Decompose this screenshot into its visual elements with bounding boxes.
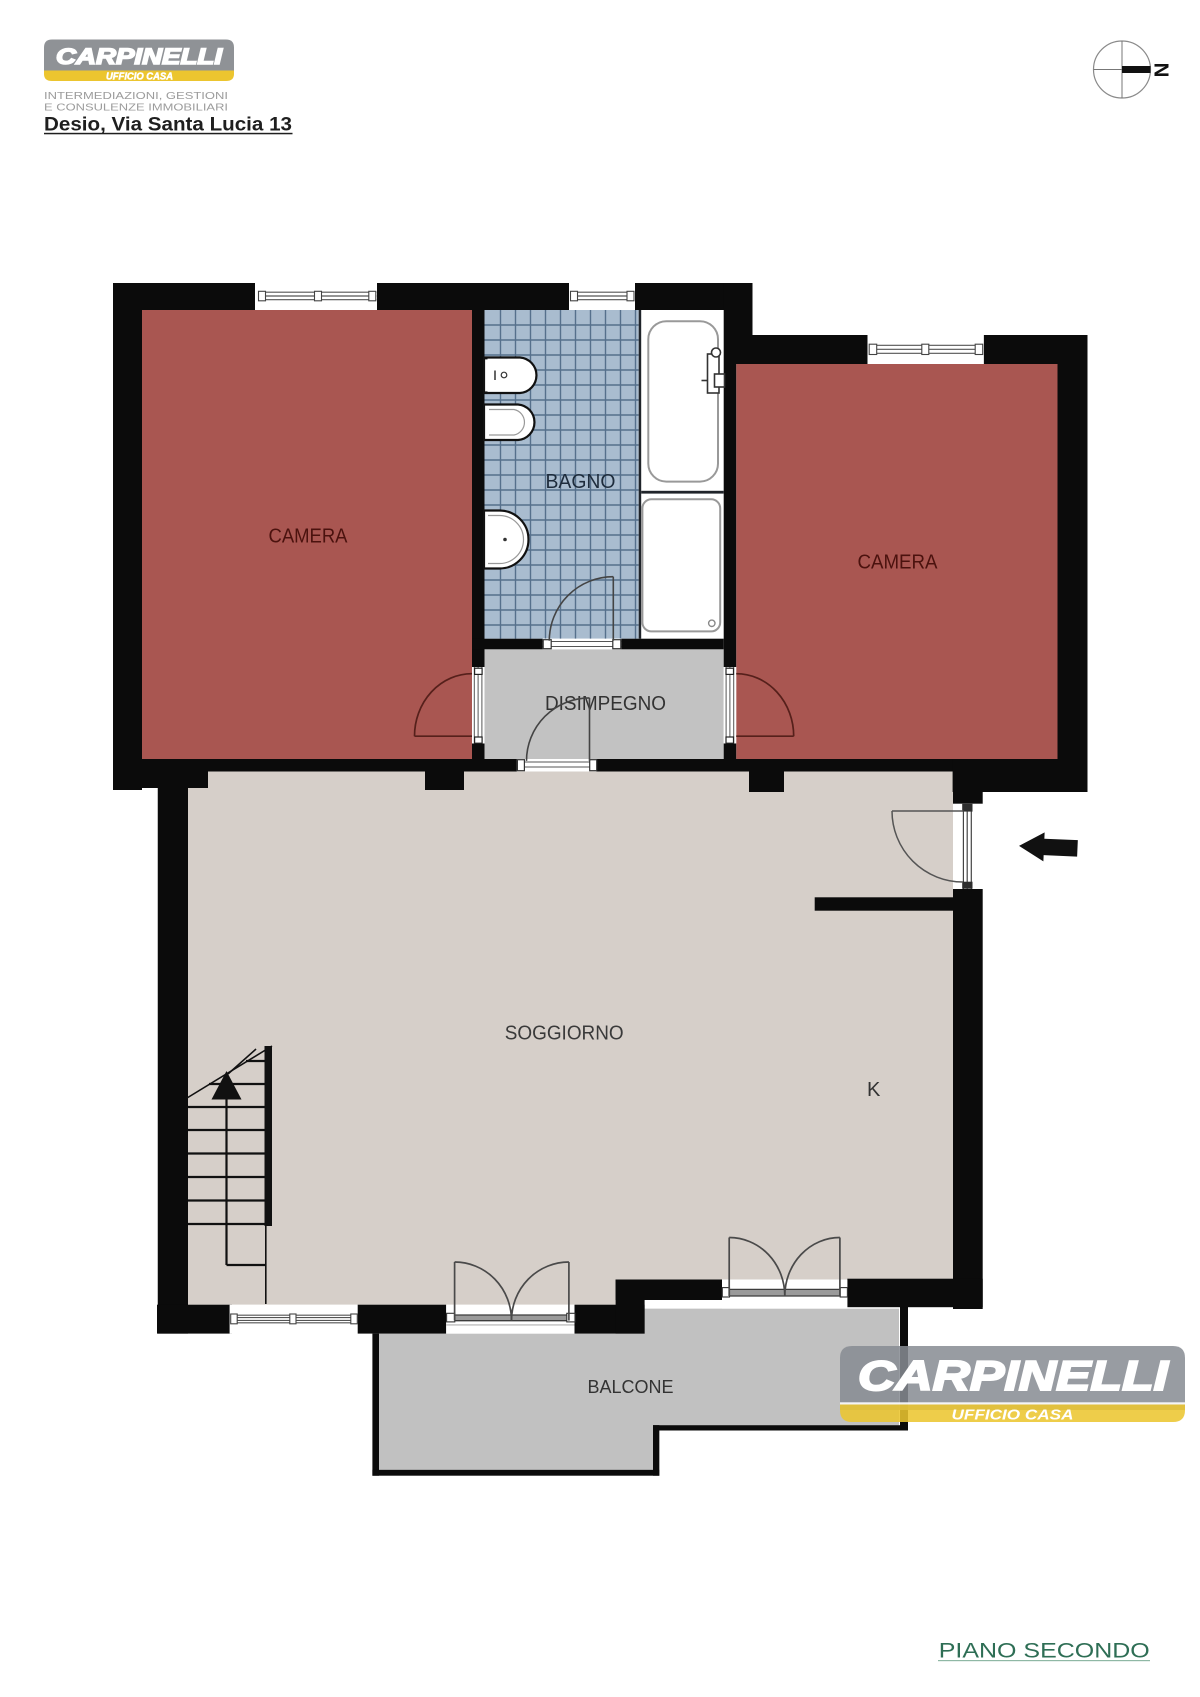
svg-text:CARPINELLI: CARPINELLI [858,1352,1170,1399]
svg-text:Desio, Via Santa Lucia 13: Desio, Via Santa Lucia 13 [44,114,292,136]
svg-text:CAMERA: CAMERA [858,552,939,574]
svg-text:UFFICIO CASA: UFFICIO CASA [952,1407,1074,1424]
svg-text:BALCONE: BALCONE [588,1377,674,1397]
svg-text:K: K [867,1079,881,1101]
svg-text:E CONSULENZE IMMOBILIARI: E CONSULENZE IMMOBILIARI [44,102,228,114]
svg-text:SOGGIORNO: SOGGIORNO [505,1023,624,1045]
svg-text:INTERMEDIAZIONI, GESTIONI: INTERMEDIAZIONI, GESTIONI [44,90,228,102]
svg-text:N: N [1149,63,1172,78]
svg-text:CAMERA: CAMERA [269,526,349,548]
svg-text:UFFICIO CASA: UFFICIO CASA [106,70,173,82]
svg-text:CARPINELLI: CARPINELLI [56,44,223,69]
svg-text:BAGNO: BAGNO [546,471,616,493]
svg-text:PIANO SECONDO: PIANO SECONDO [939,1639,1150,1663]
